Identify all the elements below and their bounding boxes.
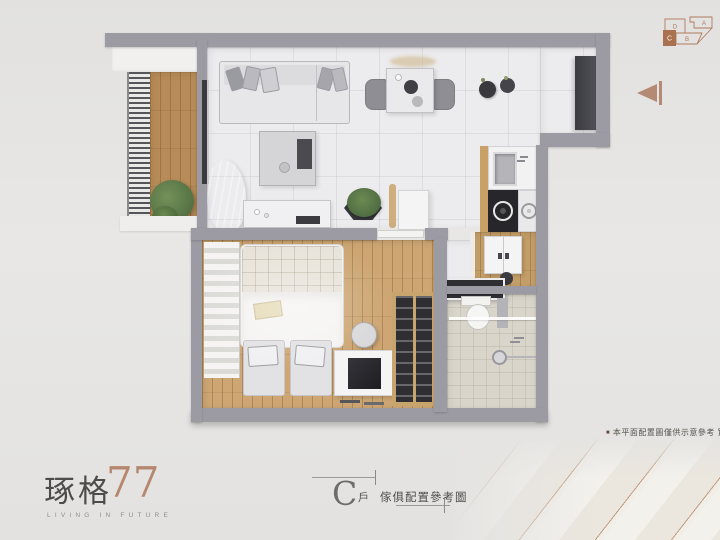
logo-number: 77 xyxy=(106,458,159,507)
dining-chair-left xyxy=(365,79,388,110)
bed-plaid-blanket xyxy=(242,246,342,292)
toilet-side-panel xyxy=(497,298,508,328)
project-logo: 琢格 77 LIVING IN FUTURE xyxy=(44,458,204,528)
caption-suffix: 戶 xyxy=(358,489,369,505)
magazine-holder xyxy=(297,139,312,169)
dining-plate-gray xyxy=(412,96,423,107)
floor-vase-1 xyxy=(479,81,496,98)
disclaimer-text: 本平面配置圖僅供示意參考 實際以交屋 xyxy=(613,428,720,437)
coffee-table xyxy=(259,131,316,186)
disclaimer-bullet: ■ xyxy=(606,430,610,436)
caption-tick-bottom xyxy=(444,497,445,513)
wall-top xyxy=(105,33,610,47)
kitchen-unit xyxy=(480,146,540,232)
console-bottle xyxy=(254,209,260,215)
cabinet-handles xyxy=(498,253,502,259)
floor-vase-2 xyxy=(500,78,515,93)
balcony-top-ledge xyxy=(112,47,197,72)
wall-divider-living-bedroom xyxy=(191,228,377,240)
dining-table xyxy=(386,68,434,113)
wardrobe-open xyxy=(392,292,436,406)
bed xyxy=(240,244,344,396)
bedroom-curtain xyxy=(204,242,240,378)
tv-screen xyxy=(348,358,381,389)
shower-head xyxy=(492,350,507,365)
bench-pillow xyxy=(294,345,326,368)
caption-rule-bottom xyxy=(396,505,450,506)
unit-caption: C 戶 傢俱配置參考圖 xyxy=(300,460,480,520)
cabinet-door-split xyxy=(503,237,504,275)
logo-brand: 琢格 xyxy=(44,466,112,511)
console-bottle xyxy=(264,213,269,218)
floor-lamp-pole xyxy=(389,184,396,228)
shower-arm xyxy=(505,356,536,358)
wall-step xyxy=(540,133,610,147)
ceiling-lamp-glow xyxy=(390,56,436,67)
entrance-arrow-icon xyxy=(637,84,657,102)
caption-tick-top xyxy=(375,470,376,485)
vase-flowers xyxy=(484,74,488,78)
sofa-seat-split xyxy=(316,65,317,121)
sofa xyxy=(219,61,350,124)
bedroom-door-leaf xyxy=(377,230,424,238)
wardrobe-divider xyxy=(413,296,416,402)
key-plan-label-a: A xyxy=(702,21,706,27)
entrance-arrow-bar xyxy=(659,81,662,105)
bench-pillow xyxy=(247,345,278,367)
floor-plan-poster-photo: { "logo": { "brand": "琢格", "number": "77… xyxy=(0,0,720,540)
wall-nook-bath-divider xyxy=(447,286,536,294)
burner-right xyxy=(521,203,537,219)
wall-bedroom-right xyxy=(434,238,447,412)
dining-cup xyxy=(395,74,402,81)
dining-plate-dark xyxy=(404,80,418,94)
dining-chair-right xyxy=(432,79,455,110)
key-plan: D A B C xyxy=(658,12,716,52)
tv-floor-items xyxy=(340,400,360,403)
wall-bottom xyxy=(191,408,548,422)
window-living-left xyxy=(202,80,209,184)
bathroom-floor xyxy=(447,294,536,408)
kitchen-faucet xyxy=(517,160,525,162)
refrigerator-cube xyxy=(398,190,429,230)
bedroom-pouf xyxy=(351,322,377,348)
wall-right-upper xyxy=(596,33,610,147)
caption-title: 傢俱配置參考圖 xyxy=(380,489,468,505)
key-plan-label-c: C xyxy=(667,36,672,43)
console-sideboard xyxy=(243,200,331,228)
caption-letter: C xyxy=(332,474,357,513)
tv-cabinet xyxy=(334,350,394,396)
kitchen-sink xyxy=(493,152,517,186)
shower-valve xyxy=(510,341,520,343)
sofa-pillow xyxy=(242,66,261,92)
kitchen-wood-edge xyxy=(480,146,488,232)
key-plan-label-d: D xyxy=(673,25,678,31)
plant-foliage xyxy=(347,188,381,217)
key-plan-diagonal xyxy=(697,28,712,44)
table-decor xyxy=(279,162,290,173)
nook-cabinet xyxy=(484,236,522,274)
burner-left xyxy=(493,201,513,221)
sofa-pillow xyxy=(331,67,348,92)
wall-right-lower xyxy=(536,145,548,422)
console-tray xyxy=(296,216,320,224)
logo-tagline: LIVING IN FUTURE xyxy=(47,512,172,519)
wall-left-lower xyxy=(191,228,202,422)
balcony-louver-screen xyxy=(127,72,150,218)
key-plan-label-b: B xyxy=(685,37,689,43)
disclaimer-note: ■ 本平面配置圖僅供示意參考 實際以交屋 xyxy=(606,427,720,438)
balcony-bottom-ledge xyxy=(120,216,197,231)
shower-glass-partition xyxy=(449,317,536,320)
